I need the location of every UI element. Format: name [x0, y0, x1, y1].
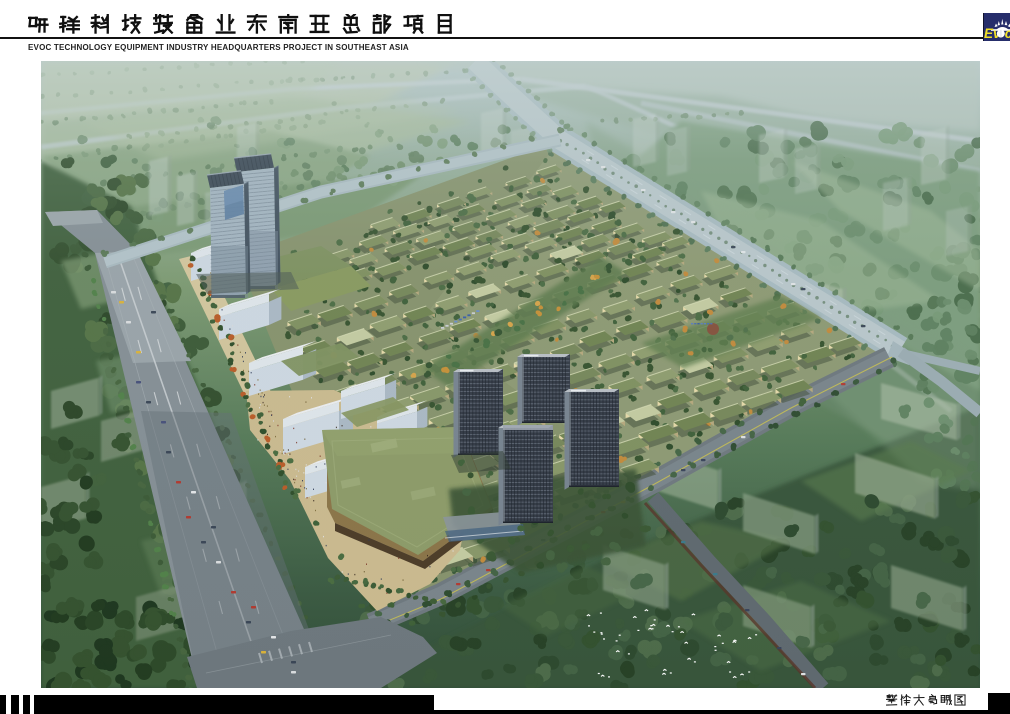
svg-text:c: c [1005, 26, 1010, 41]
